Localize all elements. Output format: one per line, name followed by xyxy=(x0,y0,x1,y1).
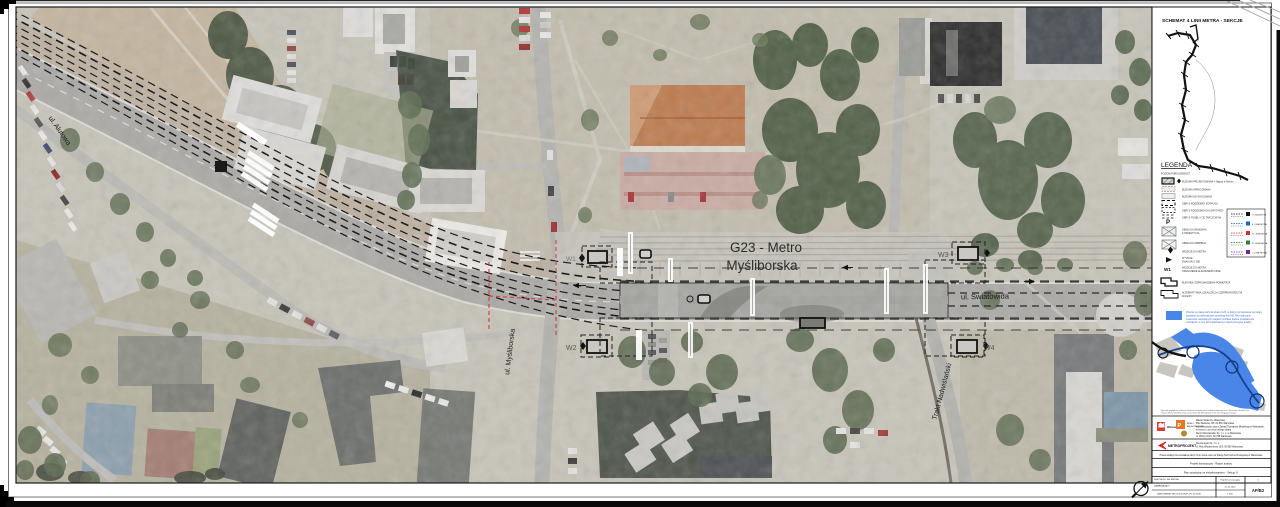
svg-text:Z INWESTYCJĄ: Z INWESTYCJĄ xyxy=(1182,232,1200,235)
svg-text:Miasto Stołeczne Warszawa: Miasto Stołeczne Warszawa xyxy=(1196,419,1225,422)
svg-text:W2: W2 xyxy=(566,345,577,352)
svg-text:OBSŁUGA ODRĘBNA: OBSŁUGA ODRĘBNA xyxy=(1182,242,1206,245)
svg-text:w imieniu i na rzecz którego d: w imieniu i na rzecz którego działa xyxy=(1196,429,1232,432)
svg-text:Plan sytuacyjny ze zlokalizowa: Plan sytuacyjny ze zlokalizowaniem - Sek… xyxy=(1184,471,1239,475)
svg-text:ZAMÓWIENIE NR UD-DK-WZP-271.52: ZAMÓWIENIE NR UD-DK-WZP-271.52.2020 xyxy=(1157,493,1202,496)
svg-text:BUDOWA PROJEKTOWANA + Najazd w: BUDOWA PROJEKTOWANA + Najazd w Metrze xyxy=(1182,181,1234,184)
svg-text:1:500: 1:500 xyxy=(1227,494,1233,496)
svg-text:Projekt koncepcyjny - Raport a: Projekt koncepcyjny - Raport analizy xyxy=(1190,462,1233,466)
svg-text:LEGENDA: LEGENDA xyxy=(1161,162,1193,169)
svg-text:Metroprojekt Sp. z o. o.: Metroprojekt Sp. z o. o. xyxy=(1196,442,1220,445)
svg-text:Praca analityczno-studialna dl: Praca analityczno-studialna dla IV Linii… xyxy=(1160,454,1263,457)
svg-text:WEJŚCIE DO METRA: WEJŚCIE DO METRA xyxy=(1182,251,1206,254)
svg-text:EWAKUACYJNE: EWAKUACYJNE xyxy=(1182,260,1201,263)
svg-text:W1: W1 xyxy=(1164,267,1171,272)
svg-text:Myśliborska: Myśliborska xyxy=(726,258,798,273)
svg-text:P: P xyxy=(1166,220,1170,226)
svg-text:V. LINIA METRA: V. LINIA METRA xyxy=(1252,252,1267,255)
svg-text:IV. LINIA METRA: IV. LINIA METRA xyxy=(1252,242,1268,245)
svg-text:III. LINIA METRA: III. LINIA METRA xyxy=(1252,233,1268,236)
svg-text:ul. Plac Włodzimierza 10/5, 00: ul. Plac Włodzimierza 10/5, 00-950 Warsz… xyxy=(1196,445,1243,448)
svg-text:ANALIZY: ANALIZY xyxy=(1182,295,1192,298)
svg-text:ZAMAWIAJĄCY: ZAMAWIAJĄCY xyxy=(1154,485,1170,488)
svg-text:OBRYS PODZIEMNYCH KORYTARZY: OBRYS PODZIEMNYCH KORYTARZY xyxy=(1182,210,1224,213)
svg-text:stanowi oferty. Wszelkie prawa: stanowi oferty. Wszelkie prawa zastrzeżo… xyxy=(1161,412,1237,415)
svg-text:BIURO: BIURO xyxy=(1187,423,1194,425)
svg-text:OBRYS TUNELI I OD TARCZOWYM: OBRYS TUNELI I OD TARCZOWYM xyxy=(1182,217,1221,220)
svg-text:BUDOWA OPRACOWANA: BUDOWA OPRACOWANA xyxy=(1182,189,1211,192)
svg-text:I. LINIA METRA: I. LINIA METRA xyxy=(1252,214,1267,217)
svg-text:P: P xyxy=(1178,423,1182,429)
svg-text:Metro Warszawskie Sp. z o. o.: Metro Warszawskie Sp. z o. o. w Warszawi… xyxy=(1196,432,1242,435)
svg-text:rozwiązań, w tym skomplikowane: rozwiązań, w tym skomplikowanej i między… xyxy=(1186,321,1252,324)
svg-text:OBRYS PODZIEMNY KORPUSU: OBRYS PODZIEMNY KORPUSU xyxy=(1182,203,1218,206)
svg-text:SEKCJA IV LINII METRA: SEKCJA IV LINII METRA xyxy=(1154,478,1179,481)
svg-text:II. LINIA METRA: II. LINIA METRA xyxy=(1252,223,1267,226)
svg-text:METROPROJEKT: METROPROJEKT xyxy=(1168,444,1197,448)
svg-text:Projekt koncepcyjny: Projekt koncepcyjny xyxy=(1220,479,1240,482)
svg-text:W1: W1 xyxy=(566,256,576,263)
svg-text:G23 - Metro: G23 - Metro xyxy=(730,240,802,255)
svg-text:ul. Wilczy Dół 5, 02-798 Warsz: ul. Wilczy Dół 5, 02-798 Warszawa xyxy=(1196,435,1232,438)
svg-text:W4: W4 xyxy=(984,345,995,352)
svg-text:W3: W3 xyxy=(938,252,949,259)
svg-text:OZNACZENIE ALFANUMERYCZNE: OZNACZENIE ALFANUMERYCZNE xyxy=(1182,270,1221,273)
svg-text:Rysunek poglądowy schematu lok: Rysunek poglądowy schematu lokalizacji z… xyxy=(1161,409,1249,412)
svg-text:ul. Światowida: ul. Światowida xyxy=(961,292,1010,302)
svg-text:reprezentowane przez Zarząd Tr: reprezentowane przez Zarząd Transportu M… xyxy=(1196,425,1265,428)
svg-text:AP/B2: AP/B2 xyxy=(1252,488,1265,493)
svg-text:21.10.2020: 21.10.2020 xyxy=(1225,487,1237,489)
svg-text:Plac Bankowy 3/5, 00-950 Warsz: Plac Bankowy 3/5, 00-950 Warszawa xyxy=(1196,422,1235,425)
svg-text:BUDYNEK ODPROWADZENIA POWIETRZ: BUDYNEK ODPROWADZENIA POWIETRZA xyxy=(1182,282,1231,285)
svg-text:SCHEMAT 4 LINII METRA - SEKCJE: SCHEMAT 4 LINII METRA - SEKCJE xyxy=(1162,18,1244,24)
svg-text:BUDOWA DO WYKONANIA: BUDOWA DO WYKONANIA xyxy=(1182,196,1212,199)
svg-text:POZIOM PUROLIZEWOST: POZIOM PUROLIZEWOST xyxy=(1161,173,1191,176)
